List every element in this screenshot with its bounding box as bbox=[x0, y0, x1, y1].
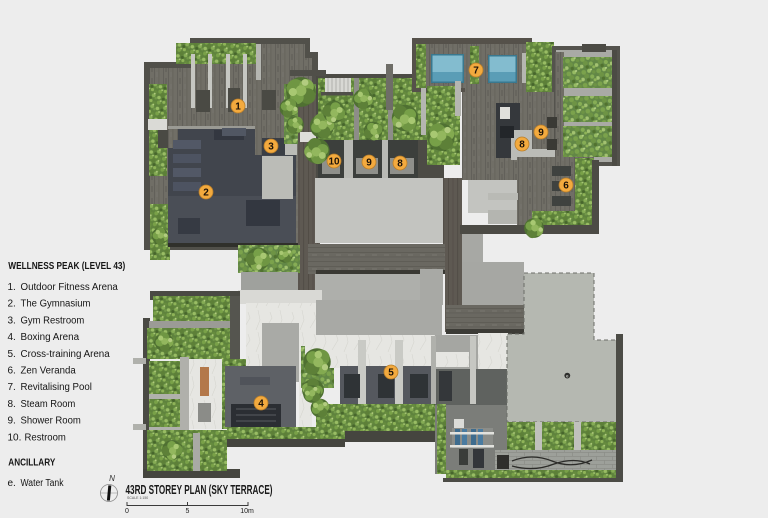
svg-text:e.: e. bbox=[8, 478, 16, 489]
svg-text:The Gymnasium: The Gymnasium bbox=[21, 299, 91, 310]
svg-text:2: 2 bbox=[203, 188, 209, 199]
svg-text:Cross-training Arena: Cross-training Arena bbox=[21, 349, 111, 360]
svg-text:ANCILLARY: ANCILLARY bbox=[8, 458, 55, 469]
svg-text:Revitalising Pool: Revitalising Pool bbox=[21, 382, 92, 393]
svg-text:Steam Room: Steam Room bbox=[21, 399, 76, 410]
svg-text:5.: 5. bbox=[8, 349, 16, 360]
svg-text:5: 5 bbox=[186, 508, 190, 515]
svg-text:Water Tank: Water Tank bbox=[21, 478, 65, 489]
svg-text:10.: 10. bbox=[8, 432, 22, 443]
svg-text:5: 5 bbox=[388, 368, 394, 379]
svg-text:SCALE 1:150: SCALE 1:150 bbox=[127, 496, 148, 500]
svg-text:Restroom: Restroom bbox=[25, 432, 66, 443]
svg-text:7.: 7. bbox=[8, 382, 16, 393]
svg-text:0: 0 bbox=[125, 508, 129, 515]
svg-text:9: 9 bbox=[366, 158, 372, 169]
svg-text:Outdoor Fitness Arena: Outdoor Fitness Arena bbox=[21, 282, 119, 293]
svg-text:3.: 3. bbox=[8, 315, 16, 326]
svg-text:9.: 9. bbox=[8, 416, 16, 427]
svg-text:1.: 1. bbox=[8, 282, 16, 293]
svg-text:9: 9 bbox=[538, 128, 544, 139]
svg-text:N: N bbox=[109, 474, 115, 483]
svg-text:Boxing Arena: Boxing Arena bbox=[21, 332, 80, 343]
svg-text:4: 4 bbox=[258, 399, 264, 410]
svg-text:3: 3 bbox=[268, 142, 274, 153]
svg-text:WELLNESS PEAK (LEVEL 43): WELLNESS PEAK (LEVEL 43) bbox=[8, 261, 125, 272]
svg-text:7: 7 bbox=[473, 66, 479, 77]
svg-text:10m: 10m bbox=[240, 508, 254, 515]
svg-text:4.: 4. bbox=[8, 332, 16, 343]
svg-text:Shower Room: Shower Room bbox=[21, 416, 81, 427]
svg-text:10: 10 bbox=[328, 157, 340, 168]
svg-text:8: 8 bbox=[397, 159, 403, 170]
svg-text:6: 6 bbox=[563, 181, 569, 192]
svg-text:43RD STOREY PLAN (SKY TERRACE): 43RD STOREY PLAN (SKY TERRACE) bbox=[126, 482, 273, 497]
svg-text:Zen Veranda: Zen Veranda bbox=[21, 366, 77, 377]
svg-text:8: 8 bbox=[519, 140, 525, 151]
svg-text:8.: 8. bbox=[8, 399, 16, 410]
svg-text:1: 1 bbox=[235, 102, 241, 113]
svg-text:Gym Restroom: Gym Restroom bbox=[21, 315, 85, 326]
svg-text:6.: 6. bbox=[8, 366, 16, 377]
svg-text:2.: 2. bbox=[8, 299, 16, 310]
